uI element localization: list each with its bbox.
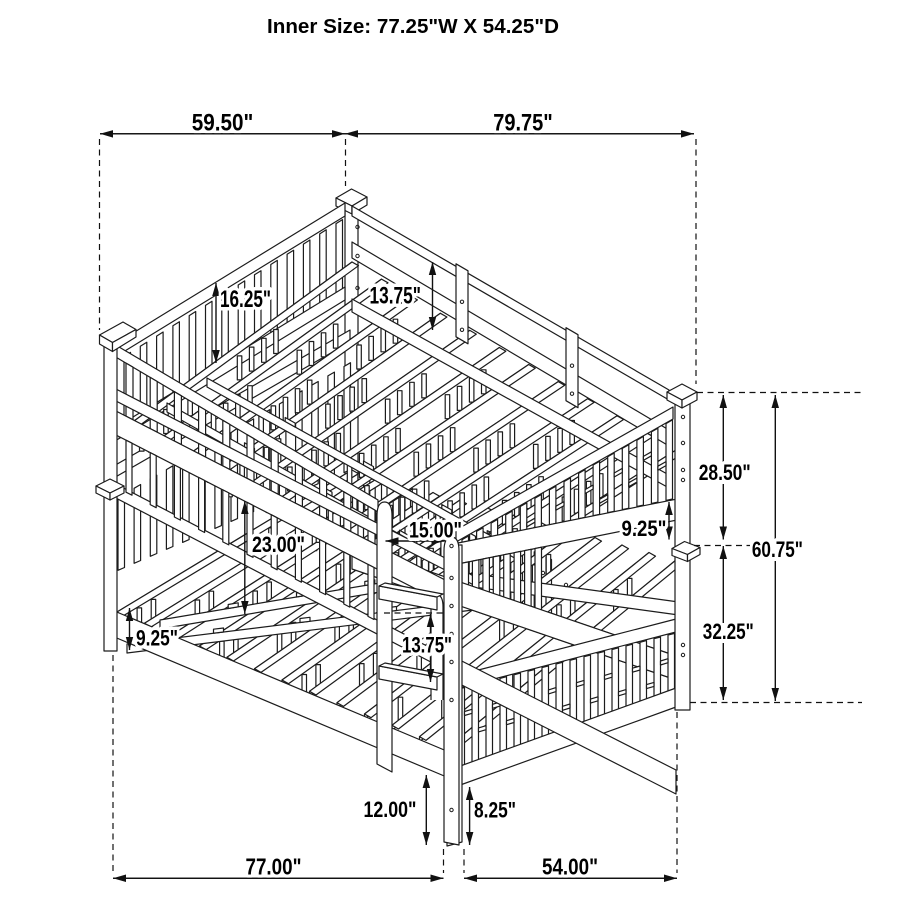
svg-text:16.25": 16.25" bbox=[220, 286, 271, 313]
svg-text:59.50": 59.50" bbox=[192, 110, 254, 137]
svg-text:28.50": 28.50" bbox=[699, 460, 751, 485]
svg-text:13.75": 13.75" bbox=[370, 283, 422, 310]
svg-text:60.75": 60.75" bbox=[752, 537, 803, 562]
svg-text:23.00": 23.00" bbox=[252, 532, 305, 557]
svg-text:12.00": 12.00" bbox=[364, 797, 417, 822]
svg-text:13.75": 13.75" bbox=[402, 633, 452, 658]
svg-text:79.75": 79.75" bbox=[493, 110, 553, 137]
svg-text:15.00": 15.00" bbox=[409, 518, 462, 543]
svg-text:9.25": 9.25" bbox=[622, 516, 667, 541]
svg-text:77.00": 77.00" bbox=[246, 854, 302, 880]
svg-text:Inner Size: 77.25"W X 54.25"D: Inner Size: 77.25"W X 54.25"D bbox=[267, 15, 559, 38]
svg-text:54.00": 54.00" bbox=[542, 854, 598, 880]
svg-text:9.25": 9.25" bbox=[136, 626, 178, 651]
svg-text:8.25": 8.25" bbox=[474, 798, 516, 823]
svg-text:32.25": 32.25" bbox=[703, 619, 754, 644]
